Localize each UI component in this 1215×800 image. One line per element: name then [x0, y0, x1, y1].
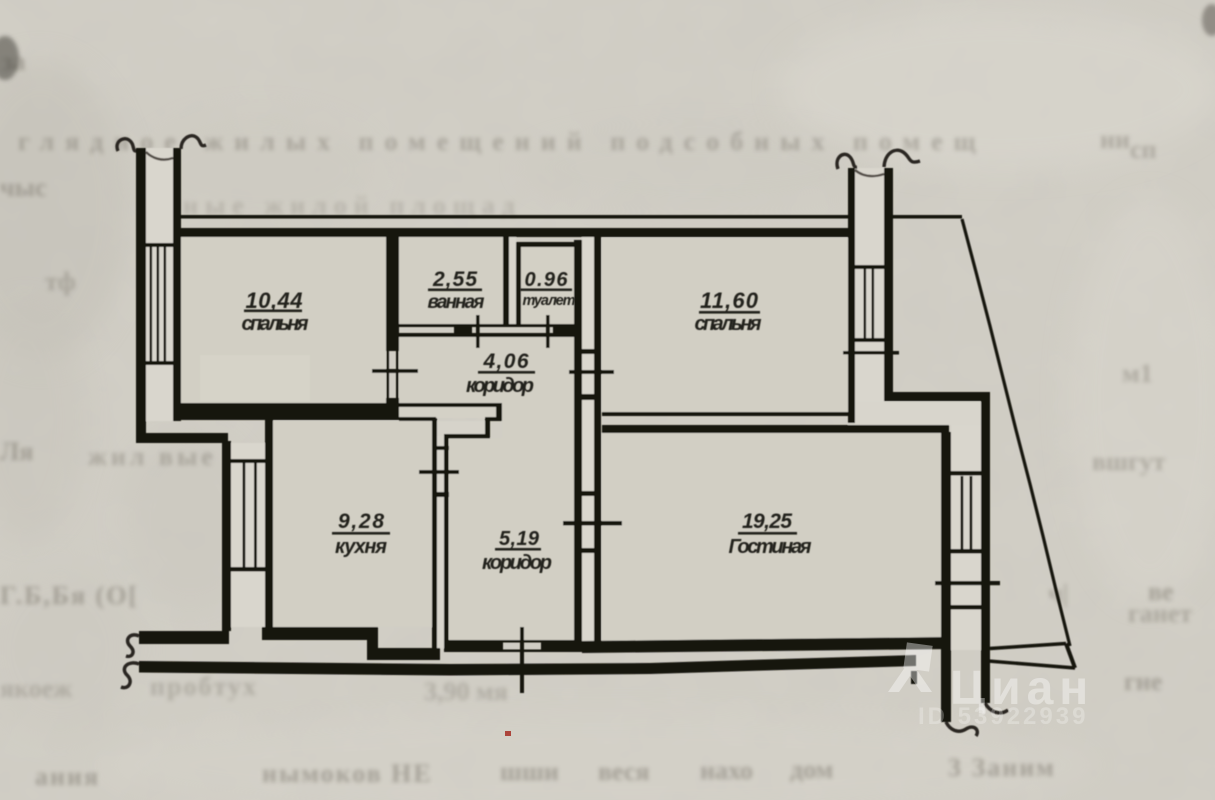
svg-text:19,25: 19,25 — [742, 510, 792, 533]
svg-text:коридор: коридор — [466, 375, 534, 397]
svg-text:жил вые: жил вые — [88, 442, 217, 471]
svg-text:тф: тф — [45, 267, 76, 296]
svg-text:9,28: 9,28 — [338, 510, 384, 533]
svg-text:м1: м1 — [1122, 359, 1153, 388]
svg-text:Гостиная: Гостиная — [729, 536, 812, 558]
svg-text:ванная: ванная — [428, 292, 485, 313]
svg-text:10,44: 10,44 — [246, 288, 303, 313]
svg-text:4,06: 4,06 — [483, 350, 529, 373]
svg-text:ганет: ганет — [1128, 599, 1192, 628]
svg-text:вшгут: вшгут — [1092, 447, 1166, 476]
svg-text:2,55: 2,55 — [432, 268, 477, 291]
svg-text:Ля: Ля — [0, 437, 33, 466]
svg-text:шши: шши — [500, 757, 559, 786]
svg-text:якоеж: якоеж — [0, 674, 72, 703]
svg-text:чыс: чыс — [0, 173, 47, 202]
svg-text:сп: сп — [1130, 135, 1157, 164]
svg-text:веся: веся — [598, 757, 650, 786]
svg-text:туалет: туалет — [523, 293, 576, 309]
svg-text:5,19: 5,19 — [499, 528, 540, 550]
svg-text:спальня: спальня — [242, 313, 309, 335]
svg-text:ID 53922939: ID 53922939 — [918, 703, 1088, 730]
svg-text:нахо: нахо — [700, 756, 753, 785]
svg-text:дом: дом — [790, 755, 833, 784]
svg-text:3 Заним: 3 Заним — [948, 753, 1056, 782]
svg-text:пробтух: пробтух — [150, 672, 258, 701]
svg-text:кухня: кухня — [335, 536, 387, 558]
svg-text:11,60: 11,60 — [700, 288, 759, 313]
svg-text:нымоков НЕ: нымоков НЕ — [262, 759, 433, 788]
svg-text:3,90 мя: 3,90 мя — [424, 677, 508, 706]
svg-text:гне: гне — [1124, 667, 1162, 696]
svg-text:ания: ания — [35, 762, 100, 791]
svg-text:коридор: коридор — [482, 552, 552, 574]
svg-text:спальня: спальня — [695, 313, 762, 335]
svg-text:ни: ни — [1100, 125, 1130, 154]
svg-text:0.96: 0.96 — [525, 269, 569, 291]
svg-text:Г.Б,Бя (О[: Г.Б,Бя (О[ — [0, 581, 139, 610]
